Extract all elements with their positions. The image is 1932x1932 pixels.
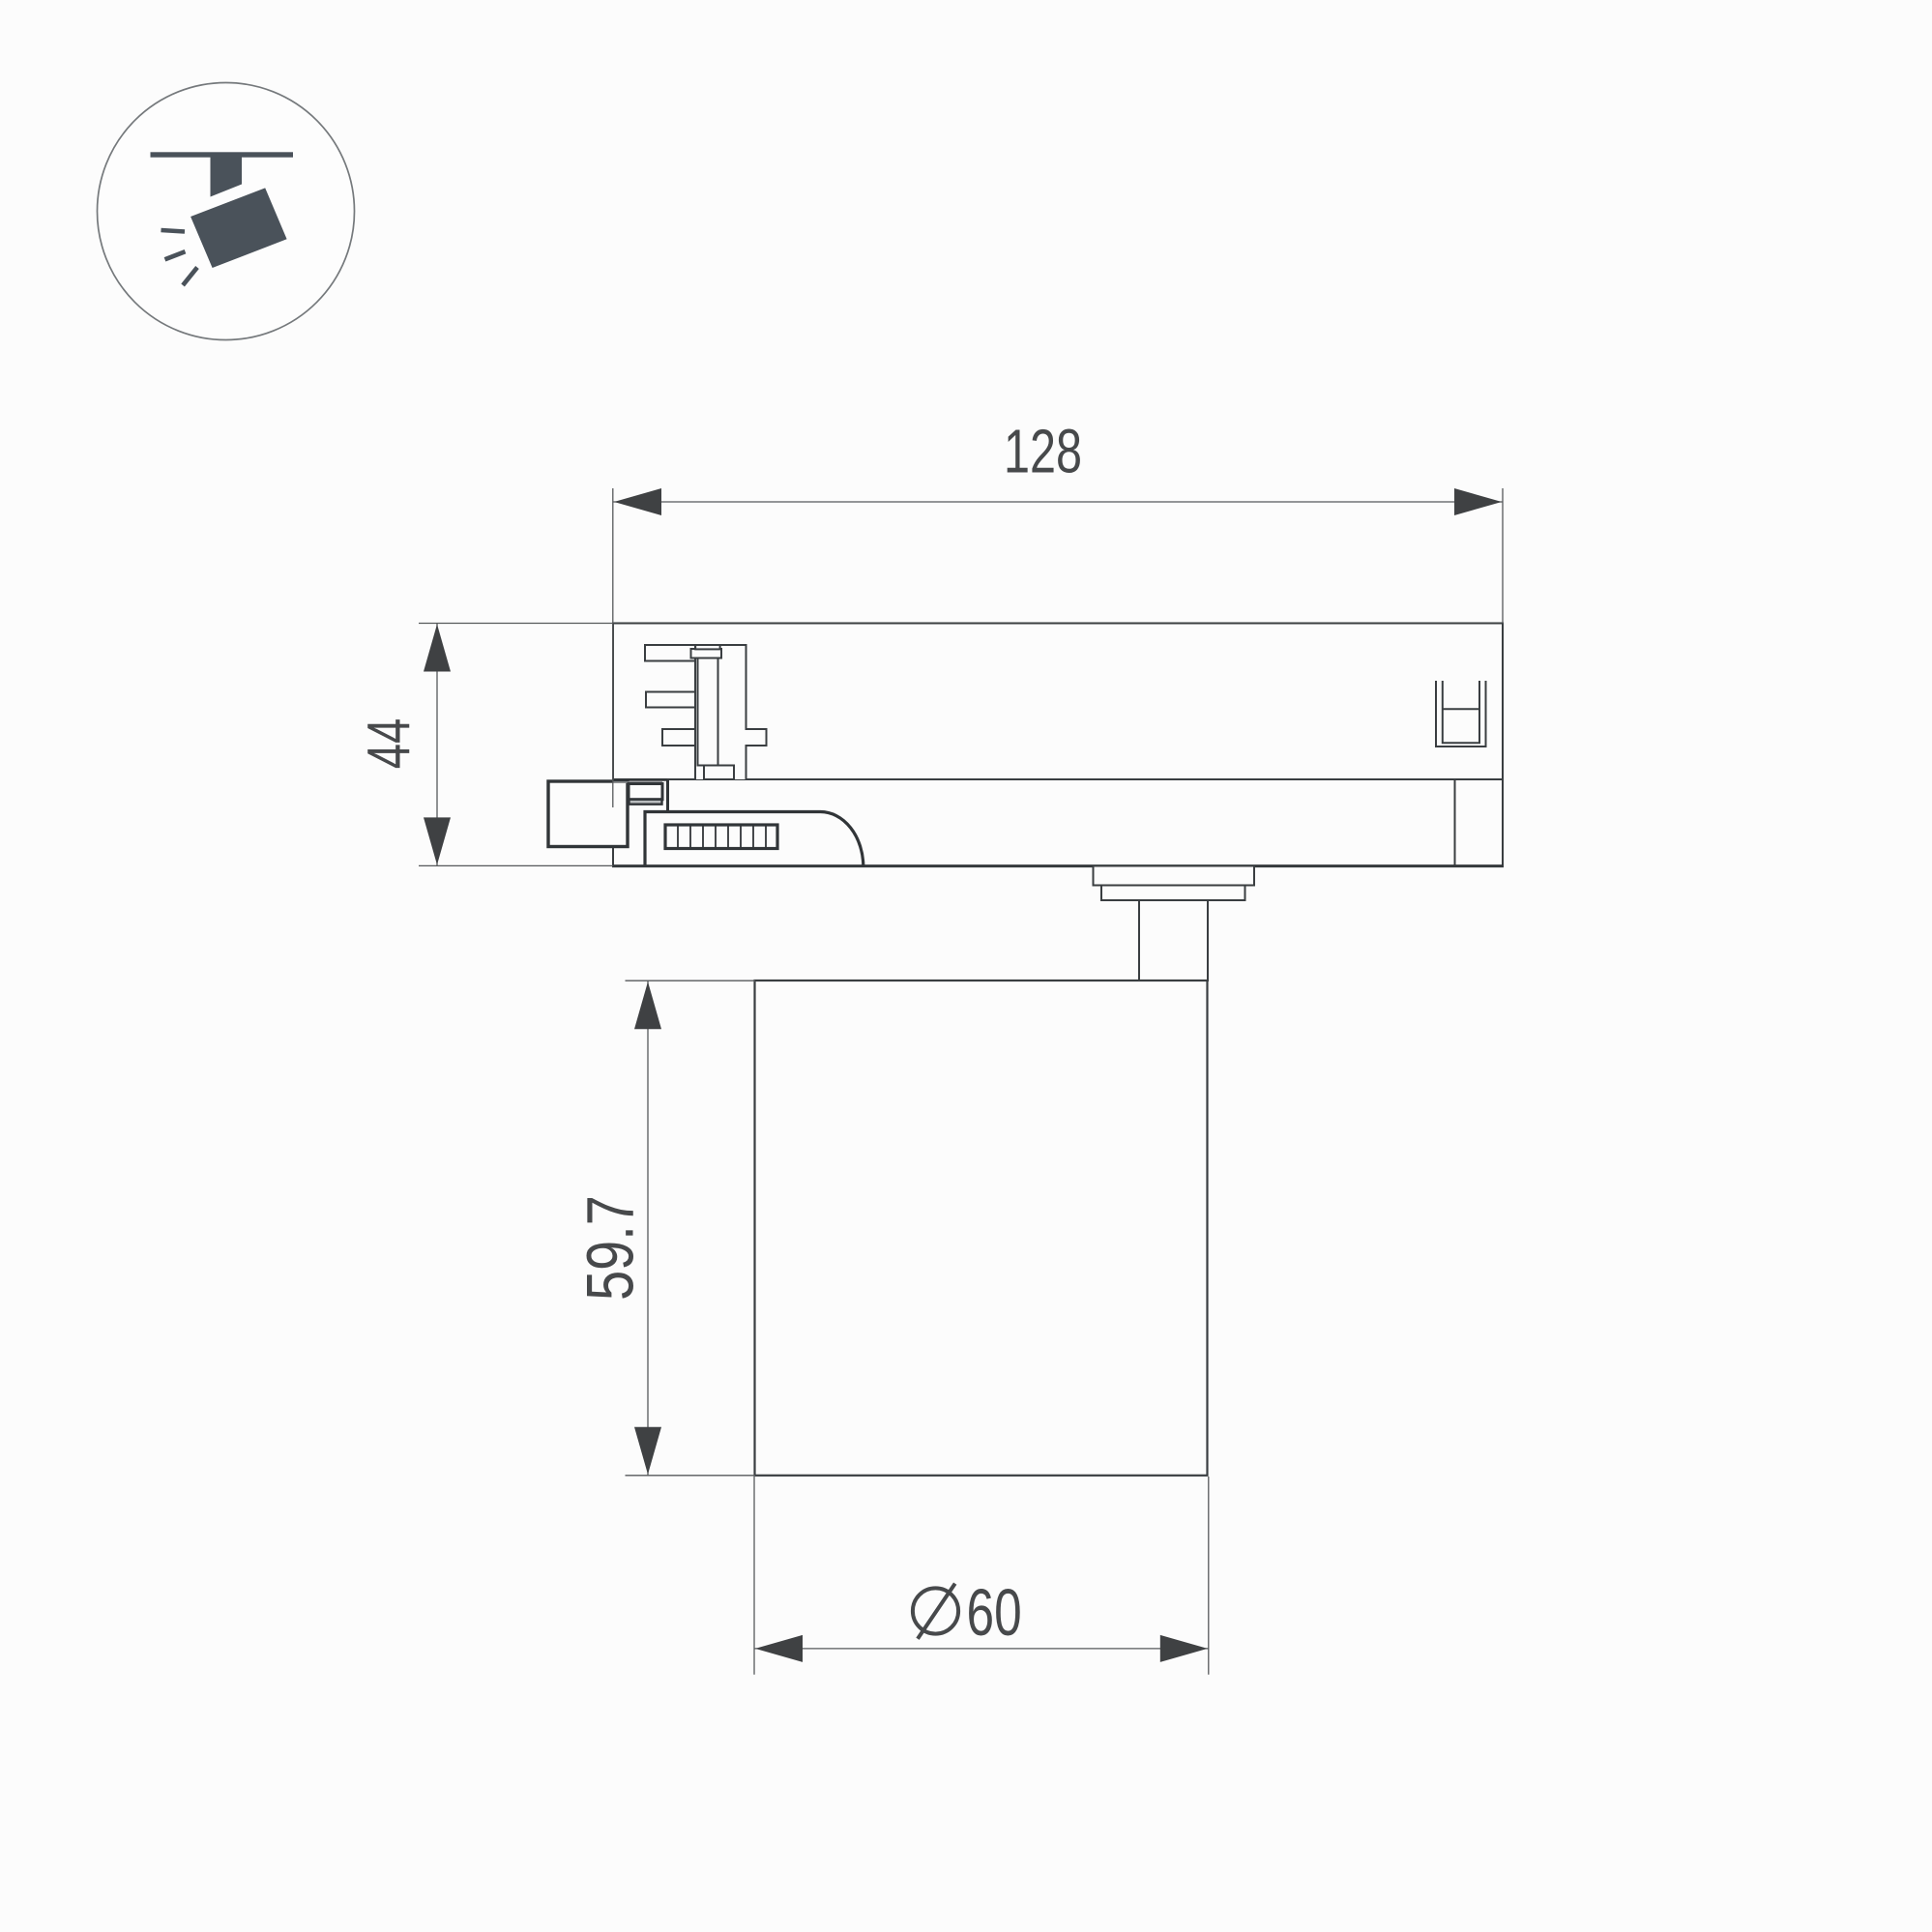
svg-text:128: 128: [1004, 416, 1082, 485]
svg-text:60: 60: [967, 1575, 1022, 1650]
svg-text:59.7: 59.7: [572, 1195, 647, 1301]
svg-text:44: 44: [356, 718, 423, 770]
